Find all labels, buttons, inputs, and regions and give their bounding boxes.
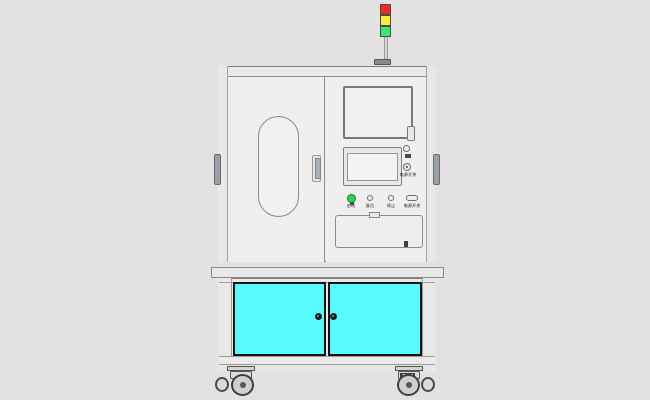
caster-left-hub [240, 382, 246, 388]
lower-access-panel [335, 215, 423, 248]
side-handle-left [214, 154, 221, 185]
access-panel-lock [404, 241, 408, 247]
power-switch-label: 电源开关 [399, 204, 424, 208]
door-handle-left [312, 155, 321, 182]
touchscreen [347, 153, 398, 181]
caster-left-swivel-ring [215, 377, 229, 392]
side-handle-right [433, 154, 440, 185]
upper-access-window [343, 86, 413, 139]
reset-button [367, 195, 373, 201]
scene: 电源开关 启动 复位 停止 电源开关 [0, 0, 650, 400]
power-indicator [403, 145, 410, 152]
door-handle-left-grip [315, 158, 321, 179]
power-connector [403, 163, 411, 171]
signal-tower-base [374, 59, 391, 65]
power-socket [405, 154, 411, 158]
signal-tower-red-light [380, 4, 391, 15]
table-band [211, 267, 444, 278]
signal-tower-yellow-light [380, 15, 391, 26]
door-knob-left [315, 313, 322, 320]
signal-tower-green-light [380, 26, 391, 37]
inspection-window [258, 116, 299, 217]
door-knob-right [330, 313, 337, 320]
power-area-label: 电源开关 [395, 173, 420, 177]
window-latch [407, 126, 415, 141]
lower-band [219, 356, 435, 364]
caster-right-hub [406, 382, 412, 388]
stop-button [388, 195, 394, 201]
door-knob-right-pin [332, 315, 334, 317]
access-panel-tab [369, 212, 380, 218]
power-connector-pin [406, 166, 408, 168]
cabinet-door-right [328, 282, 422, 356]
signal-tower-pole [384, 37, 388, 61]
cabinet-door-left [233, 282, 326, 356]
caster-right-swivel-ring [421, 377, 435, 392]
power-switch-button [406, 195, 418, 201]
door-knob-left-pin [317, 315, 319, 317]
cabinet-top-band [219, 67, 435, 77]
